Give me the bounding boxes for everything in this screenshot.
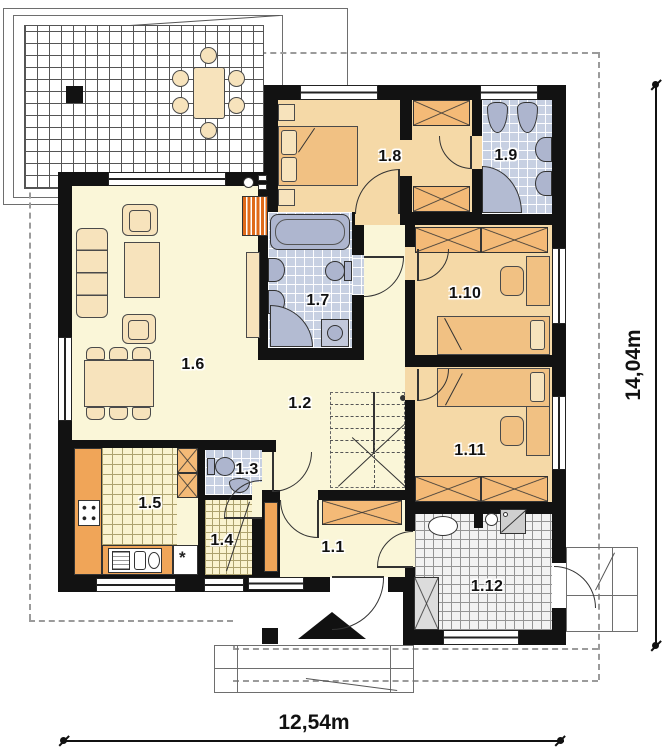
fireplace-flue-symbol [243,177,254,188]
stair-tread [330,404,405,405]
office-chair [500,266,524,296]
fireplace [242,196,268,236]
armchair-seat [128,320,149,340]
fridge-symbol: * [179,548,186,568]
side-stoop-line [612,547,613,632]
stair-tread [330,440,405,441]
entrance-door-leaf [332,576,384,578]
hall-cabinet [264,502,278,572]
utility-cabinet [414,577,439,630]
pillow [530,372,545,402]
dimension-label-width: 12,54m [244,711,384,735]
entry-hall-door-leaf [317,500,319,538]
wardrobe [415,476,481,502]
utility-int-door-leaf [377,566,413,568]
kitchen-floor-strip [177,498,198,545]
terrace-chair [200,47,217,64]
dining-chair [86,407,105,420]
room-label-1-5: 1.5 [138,495,161,513]
dimension-line-height [655,84,657,646]
entry-wardrobe [322,500,402,525]
kitchen-sink-bowl-round [148,552,160,569]
nightstand [278,104,295,121]
washbasin [535,171,552,196]
fireplace-vent-symbol [258,184,267,190]
roofline-dashed-left-bottom [29,620,233,622]
room-label-1-1: 1.1 [321,539,344,557]
room-label-1-7: 1.7 [306,292,329,310]
sofa [76,228,108,318]
room-label-1-11: 1.11 [454,442,485,460]
pantry-window [204,578,244,592]
dining-table [84,360,154,407]
wardrobe [481,476,548,502]
terrace-chair [200,122,217,139]
desk [526,256,550,306]
washing-machine-door [327,325,343,341]
terrace-chair [228,70,245,87]
stair-center-dash [374,440,375,488]
dimension-line-width [64,740,564,742]
room-label-1-10: 1.10 [449,285,481,303]
porch-step-line [214,668,414,669]
porch-step-line [237,645,238,693]
fireplace-vent-symbol [258,175,267,181]
bedroom-1-10-window [552,248,566,324]
porch-steps [214,645,414,693]
bathtub-inner [275,219,345,245]
bedroom-1-10-door-opening [405,247,415,280]
stair-tread [330,416,405,417]
bedroom-1-10-door-leaf [417,249,419,281]
toilet-bowl [325,261,345,281]
wardrobe [413,186,470,212]
dining-chair [132,347,151,360]
bedroom-1-8-door-leaf [398,169,400,214]
room-label-1-6: 1.6 [181,356,204,374]
wardrobe [481,227,548,253]
kitchen-window [96,578,176,592]
dining-chair [109,347,128,360]
floor-plan: * [0,0,665,750]
room-label-1-8: 1.8 [378,148,401,166]
toilet-bowl [215,457,235,476]
wc-door-leaf [272,452,274,492]
wardrobe [413,100,470,126]
pillow [530,320,545,350]
hall-entry-opening [280,490,318,500]
dimension-label-height: 14,04m [622,325,646,405]
kitchen-tall-cabinet [177,448,198,473]
terrace-chair [228,97,245,114]
room-label-1-4: 1.4 [210,532,233,550]
desk [526,406,550,456]
terrace-window-door [108,172,226,186]
room-label-1-9: 1.9 [494,147,517,165]
coffee-table [124,242,160,298]
living-hall-opening [258,360,278,440]
washbasin [535,137,552,162]
kitchen-sink-bowl [134,551,146,570]
terrace-column [66,86,83,103]
toilet-tank [344,261,352,281]
terrace-table [193,67,225,119]
bath-1-7-door-leaf [364,256,404,258]
office-chair [500,416,524,446]
toilet-tank [207,458,215,475]
kitchen-door-leaf [224,517,262,519]
furnace-dot [503,512,508,517]
terrace-chair [172,70,189,87]
armchair-seat [129,210,151,232]
stair-tread [330,428,405,429]
terrace-chair [172,97,189,114]
boiler-dial [485,513,498,526]
bathroom-1-9-window [480,85,538,100]
entry-sidelight-window [248,577,304,590]
nightstand [278,189,295,206]
nook-1-9-door-leaf [470,136,472,169]
stove [78,500,100,526]
porch-column [262,628,278,644]
utility-window [443,630,519,645]
room-label-1-2: 1.2 [288,395,311,413]
bath-1-7-door-opening [352,255,364,295]
living-window [58,337,72,421]
pillow [281,157,297,182]
pillow [281,130,297,155]
kitchen-tall-cabinet [177,473,198,498]
bedroom-1-11-window [552,396,566,470]
room-label-1-3: 1.3 [235,461,258,479]
dining-chair [86,347,105,360]
tv-cabinet [246,252,260,338]
room-label-1-12: 1.12 [471,578,503,596]
utility-sink [428,516,458,536]
porch-step-line [390,645,391,693]
bedroom-1-11-door-leaf [417,369,419,401]
nook-passage [400,140,412,176]
bedroom-1-8-window [300,85,378,100]
boiler-unit [474,511,483,528]
kitchen-sink-drainer [112,551,130,570]
bedroom-1-11-door-opening [405,367,415,400]
dining-chair [132,407,151,420]
dining-chair [109,407,128,420]
